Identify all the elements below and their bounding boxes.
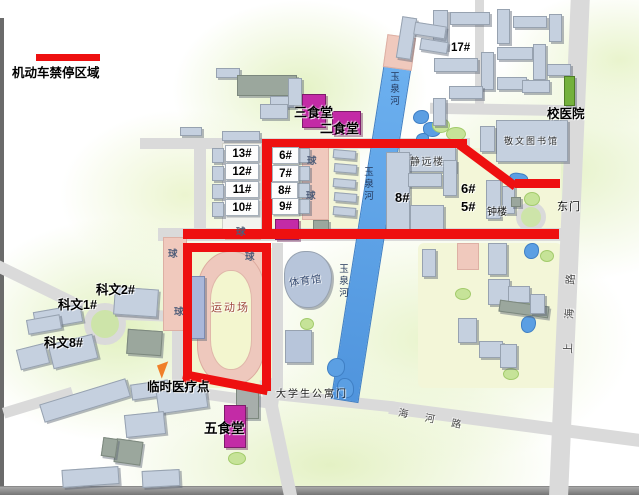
- no-parking-stadium-right: [262, 243, 271, 391]
- label-canteen-2: 二食堂: [320, 118, 359, 137]
- label-kewen-1: 科文1#: [58, 294, 97, 313]
- label-building-17: 17#: [451, 42, 470, 54]
- hospital-building: [564, 76, 575, 106]
- building: [142, 469, 181, 488]
- label-court: 球: [236, 224, 246, 238]
- label-box-12: 12#: [225, 163, 259, 180]
- building: [39, 378, 131, 422]
- no-parking-line-legend-sample: [36, 54, 100, 61]
- label-court: 球: [307, 153, 317, 167]
- label-box-13: 13#: [225, 145, 259, 162]
- label-building-5: 5#: [461, 199, 475, 214]
- label-box-8: 8#: [271, 182, 298, 199]
- building: [212, 166, 224, 181]
- label-court: 球: [245, 249, 255, 263]
- building: [513, 16, 547, 28]
- building: [333, 149, 357, 160]
- label-river: 玉泉河: [338, 264, 350, 300]
- no-parking-line-east: [515, 179, 560, 188]
- building: [334, 163, 358, 174]
- no-parking-stadium-left: [183, 243, 192, 383]
- label-bell-tower: 钟楼: [487, 203, 507, 218]
- building: [497, 9, 510, 44]
- building: [180, 127, 202, 136]
- bell-tower-building: [511, 197, 521, 207]
- building: [212, 148, 224, 163]
- left-border: [0, 18, 4, 487]
- bottom-border: [0, 486, 639, 495]
- building: [458, 318, 477, 343]
- building: [212, 184, 224, 199]
- building: [126, 329, 163, 356]
- label-library: 敬文图书馆: [504, 134, 559, 147]
- building: [488, 243, 507, 275]
- building: [449, 86, 483, 99]
- label-medical: 临时医疗点: [147, 376, 210, 395]
- label-court: 球: [168, 246, 178, 260]
- building: [450, 12, 490, 25]
- label-river: 玉泉河: [363, 167, 375, 203]
- label-kewen-2: 科文2#: [96, 279, 135, 298]
- building: [533, 44, 546, 80]
- building: [500, 344, 517, 368]
- building: [547, 64, 571, 76]
- track-infield: [210, 270, 252, 370]
- building: [497, 47, 533, 60]
- building: [222, 131, 260, 141]
- label-box-10: 10#: [225, 199, 259, 216]
- building: [101, 437, 118, 458]
- building: [334, 192, 358, 203]
- building: [530, 294, 545, 314]
- label-building-8: 8#: [395, 190, 409, 205]
- label-jingyuan: 静远楼: [410, 153, 445, 168]
- tree: [228, 452, 246, 465]
- building: [410, 205, 444, 231]
- building: [443, 160, 457, 196]
- label-box-7: 7#: [272, 165, 299, 182]
- building: [481, 52, 494, 90]
- label-apartment-gate: 大学生公寓门: [276, 385, 348, 400]
- building: [408, 173, 442, 187]
- building: [61, 466, 119, 488]
- tree: [503, 368, 519, 380]
- label-court: 球: [306, 188, 316, 202]
- campus-map: 机动车禁停区域 17# 校医院 敬文图书馆 三食堂 二食堂 13# 12# 11…: [0, 0, 639, 495]
- label-building-6: 6#: [461, 181, 475, 196]
- label-kewen-8: 科文8#: [44, 332, 83, 351]
- label-road-shanghai: 上海路: [560, 237, 579, 353]
- building: [480, 126, 495, 152]
- label-river: 玉泉河: [389, 72, 401, 108]
- tree: [300, 318, 314, 330]
- road-west-vertical: [194, 140, 206, 240]
- label-stadium: 运动场: [211, 299, 250, 315]
- building: [260, 104, 288, 119]
- label-box-11: 11#: [225, 181, 259, 198]
- building-17: [434, 58, 478, 72]
- label-box-6: 6#: [272, 147, 299, 164]
- legend-label: 机动车禁停区域: [12, 62, 100, 81]
- building: [113, 438, 143, 466]
- label-hospital: 校医院: [547, 103, 585, 122]
- tree: [524, 192, 540, 206]
- building: [522, 80, 550, 93]
- building: [549, 14, 562, 42]
- label-box-9: 9#: [272, 198, 299, 215]
- tree: [540, 250, 554, 262]
- court-east-campus: [457, 243, 479, 270]
- road-stadium-right: [272, 243, 283, 391]
- building: [124, 411, 166, 438]
- no-parking-stadium-top: [183, 243, 271, 252]
- label-east-gate: 东门: [557, 198, 581, 214]
- label-court: 球: [174, 304, 184, 318]
- building: [212, 202, 224, 217]
- label-canteen-5: 五食堂: [204, 417, 245, 437]
- pond: [524, 243, 539, 259]
- building: [433, 98, 446, 126]
- building: [422, 249, 436, 277]
- pond: [327, 358, 345, 377]
- building: [333, 206, 357, 217]
- building: [333, 178, 357, 189]
- natatorium-building: [285, 330, 312, 363]
- tree: [455, 288, 471, 300]
